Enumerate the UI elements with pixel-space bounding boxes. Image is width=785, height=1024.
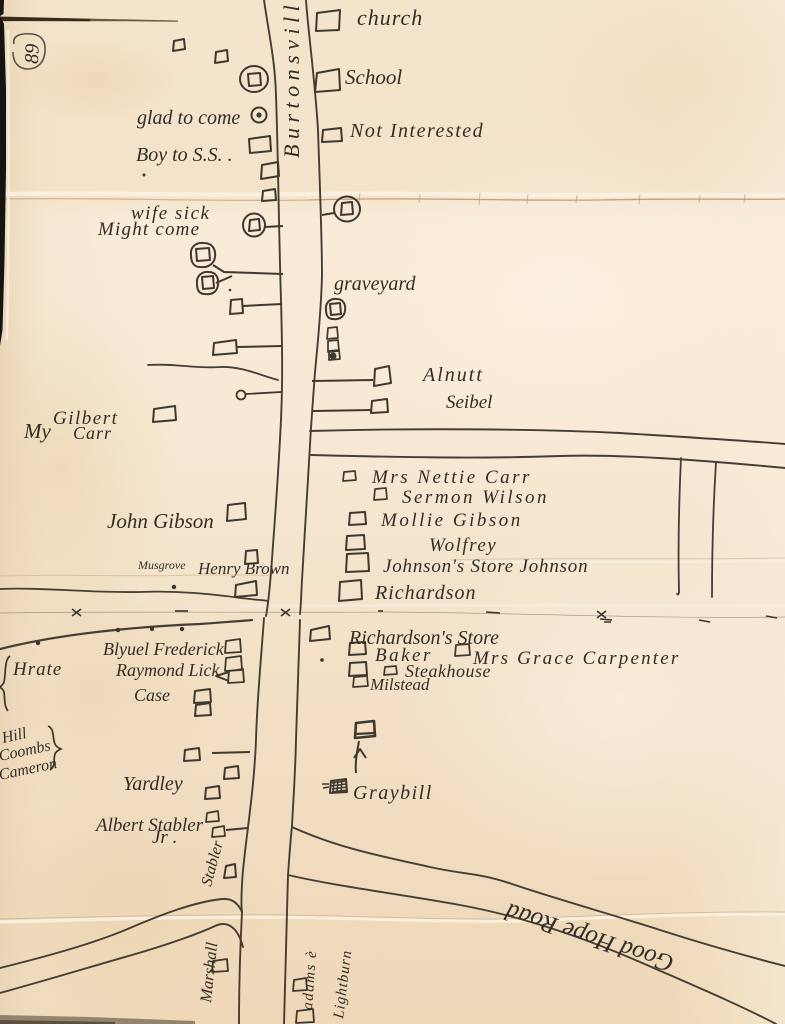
svg-text:Henry Brown: Henry Brown	[197, 559, 289, 578]
svg-text:Carr: Carr	[73, 423, 112, 443]
svg-text:John Gibson: John Gibson	[107, 509, 214, 533]
svg-text:Mollie Gibson: Mollie Gibson	[380, 510, 523, 531]
svg-text:Musgrove: Musgrove	[137, 558, 186, 572]
svg-text:School: School	[345, 65, 402, 89]
svg-text:Sermon Wilson: Sermon Wilson	[402, 487, 549, 508]
svg-text:Mrs Nettie Carr: Mrs Nettie Carr	[371, 467, 532, 488]
svg-text:Albert Stabler: Albert Stabler	[94, 815, 204, 836]
svg-text:glad to come: glad to come	[137, 107, 240, 129]
svg-text:Raymond Lick: Raymond Lick	[115, 660, 220, 680]
svg-text:Jr .: Jr .	[152, 827, 177, 848]
svg-text:Burtonsville: Burtonsville	[279, 0, 304, 158]
svg-text:Blyuel Frederick: Blyuel Frederick	[103, 639, 225, 659]
svg-text:Case: Case	[134, 685, 170, 705]
svg-text:Boy to S.S. .: Boy to S.S. .	[136, 144, 233, 166]
svg-text:Alnutt: Alnutt	[421, 364, 484, 386]
svg-text:Hrate: Hrate	[12, 659, 62, 680]
svg-text:Not Interested: Not Interested	[349, 120, 484, 142]
svg-text:Might come: Might come	[97, 219, 200, 240]
svg-text:Johnson's Store Johnson: Johnson's Store Johnson	[383, 556, 588, 577]
svg-text:Milstead: Milstead	[369, 675, 430, 694]
svg-text:Richardson: Richardson	[374, 582, 476, 604]
svg-text:Wolfrey: Wolfrey	[429, 535, 497, 556]
svg-text:Graybill: Graybill	[353, 782, 433, 804]
svg-text:Yardley: Yardley	[123, 773, 183, 795]
svg-text:Seibel: Seibel	[446, 392, 492, 413]
svg-text:Mrs Grace Carpenter: Mrs Grace Carpenter	[472, 648, 681, 669]
svg-text:church: church	[357, 5, 423, 30]
svg-text:89: 89	[21, 43, 44, 64]
svg-text:graveyard: graveyard	[334, 273, 416, 295]
svg-text:My: My	[23, 419, 51, 443]
